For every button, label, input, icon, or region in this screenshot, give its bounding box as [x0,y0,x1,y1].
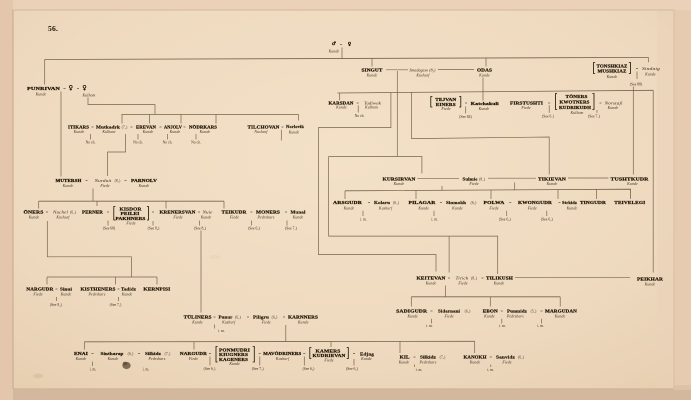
svg-text:Punmidz: Punmidz [507,309,527,314]
svg-text:Kushurf: Kushurf [378,206,393,210]
svg-text:=: = [107,210,110,215]
svg-text:(See 68): (See 68) [103,226,116,230]
svg-text:Kunde: Kunde [200,215,212,219]
svg-text:Fiede: Fiede [520,106,531,110]
svg-text:=: = [63,86,66,91]
svg-text:Norlovik: Norlovik [286,124,304,129]
svg-text:Kunde: Kunde [451,206,463,210]
svg-text:Kushurf: Kushurf [221,320,236,324]
svg-text:=: = [281,125,284,130]
svg-text:(See 6₁): (See 6₁) [542,115,555,119]
svg-text:=: = [448,276,451,281]
svg-text:=: = [481,276,484,281]
svg-text:ITIKARS: ITIKARS [68,125,89,130]
svg-text:No ch.: No ch. [191,140,201,144]
svg-text:(See 7₃): (See 7₃) [110,303,123,307]
svg-text:PERNER: PERNER [82,210,104,215]
svg-text:TEIVELEGI: TEIVELEGI [614,200,645,205]
svg-text:TUSHTKUDR: TUSHTKUDR [611,176,650,181]
svg-text:ANJOLV: ANJOLV [164,125,183,130]
svg-text:56.: 56. [48,24,58,33]
svg-text:Piligru: Piligru [253,315,270,320]
svg-text:Kunde: Kunde [366,74,378,78]
svg-text:=: = [247,315,250,320]
svg-text:=: = [117,287,120,292]
svg-text:Fiede: Fiede [261,320,272,324]
svg-text:=: = [440,200,443,205]
svg-text:=: = [46,210,49,215]
svg-text:Kushurf: Kushurf [275,357,290,361]
svg-text:(See 6₃): (See 6₃) [346,367,359,371]
svg-text:=: = [183,125,186,130]
svg-text:Norstafi: Norstafi [603,100,623,105]
svg-text:(6₀): (6₀) [128,352,135,356]
svg-text:=: = [152,210,155,215]
svg-text:ENAI: ENAI [74,351,88,356]
svg-text:(8₃): (8₃) [479,177,486,181]
svg-text:=: = [213,315,216,320]
svg-text:FIRSTUSHTI: FIRSTUSHTI [510,100,543,105]
svg-text:Kunde: Kunde [417,206,429,210]
svg-text:(See 88): (See 88) [630,82,643,86]
svg-text:Pedrshars: Pedrshars [257,215,275,219]
svg-text:Edjng: Edjng [360,351,375,356]
svg-text:Silkidz: Silkidz [420,355,436,360]
svg-text:Kunde: Kunde [73,130,85,134]
svg-text:=: = [509,200,512,205]
svg-text:TILCHOVAN: TILCHOVAN [248,125,281,130]
svg-text:Kunde: Kunde [360,357,372,361]
svg-text:POLWA: POLWA [484,200,506,205]
svg-text:Kunde: Kunde [493,281,505,285]
svg-text:i. m.: i. m. [360,217,367,221]
svg-text:Kunde: Kunde [62,184,74,188]
svg-text:Kunde: Kunde [228,362,240,366]
svg-text:i. m.: i. m. [90,367,97,371]
svg-text:TEIKUDR: TEIKUDR [222,210,248,215]
svg-text:TONSHKIAZ: TONSHKIAZ [597,63,628,68]
svg-text:=: = [340,42,343,47]
svg-text:(See 6₁): (See 6₁) [204,367,217,371]
svg-text:Nushurf: Nushurf [253,130,268,134]
svg-text:Kunde: Kunde [343,206,355,210]
svg-text:Mutkadrk: Mutkadrk [96,125,121,130]
svg-text:Fiede: Fiede [229,215,240,219]
svg-text:Sanvidz: Sanvidz [496,355,515,360]
svg-text:Kulhom: Kulhom [82,94,96,98]
svg-text:Kunde: Kunde [292,215,304,219]
svg-text:KUDRIEVAN: KUDRIEVAN [313,353,347,358]
svg-text:(7₃): (7₃) [122,126,129,130]
svg-text:(See 8₄): (See 8₄) [194,226,207,230]
svg-text:(7₀): (7₀) [440,356,447,360]
svg-text:(8₃): (8₃) [471,277,478,281]
svg-text:(See 8₄): (See 8₄) [50,303,63,307]
svg-text:=: = [258,351,261,356]
svg-text:Silkidz: Silkidz [145,351,161,356]
svg-text:TÖNERS: TÖNERS [566,94,588,99]
svg-text:=: = [130,125,133,130]
svg-text:Pedrshars: Pedrshars [506,314,524,318]
svg-text:Sidarnani: Sidarnani [438,309,461,314]
svg-text:(See 7₀): (See 7₀) [252,367,265,371]
svg-text:NARGUDR: NARGUDR [180,351,208,356]
svg-text:Kunde: Kunde [406,314,418,318]
svg-text:=: = [548,100,551,105]
svg-text:Kunde: Kunde [75,357,87,361]
svg-text:=: = [285,210,288,215]
svg-text:Tirich: Tirich [456,276,469,281]
svg-text:Tadidz: Tadidz [121,286,136,291]
svg-text:Munal: Munal [291,210,307,215]
svg-text:EBON: EBON [483,309,499,314]
svg-text:Fiede: Fiede [440,107,451,111]
svg-text:Kunde: Kunde [478,107,490,111]
svg-text:TÜLINERS: TÜLINERS [184,315,212,320]
svg-text:Fiede: Fiede [444,314,455,318]
svg-text:MARGUDAN: MARGUDAN [545,309,578,314]
svg-text:NARGUDR: NARGUDR [26,287,54,292]
svg-text:KURSIRVAN: KURSIRVAN [383,176,417,181]
svg-text:Kunde: Kunde [478,74,490,78]
svg-text:=: = [636,66,639,71]
svg-text:Kunde: Kunde [60,292,72,296]
svg-text:=: = [540,309,543,314]
svg-text:=: = [283,315,286,320]
svg-text:Fiede: Fiede [468,182,479,186]
svg-text:PARNOLV: PARNOLV [131,178,158,183]
svg-text:Kunde: Kunde [35,92,47,96]
svg-text:Fiede: Fiede [188,357,199,361]
svg-text:(6₃): (6₃) [393,201,400,205]
svg-text:PAKHNERS: PAKHNERS [116,216,146,221]
svg-text:(6₀): (6₀) [471,201,478,205]
svg-text:Kulhant: Kulhant [101,130,116,134]
svg-text:SINGUT: SINGUT [362,68,383,73]
svg-text:Kunde: Kunde [425,281,437,285]
svg-text:i. m.: i. m. [143,367,150,371]
svg-text:Sinmokh: Sinmokh [446,200,467,205]
svg-text:KARNNERS: KARNNERS [288,315,318,320]
svg-text:(See 84): (See 84) [459,115,472,119]
svg-text:KWONGUDR: KWONGUDR [518,200,553,205]
svg-text:Kunde: Kunde [554,314,566,318]
svg-text:i. m.: i. m. [487,368,494,372]
svg-text:=: = [303,351,306,356]
svg-text:Kunde: Kunde [626,182,638,186]
svg-text:Punur: Punur [219,315,233,320]
svg-text:i. m.: i. m. [416,368,423,372]
svg-text:(6₃): (6₃) [70,211,77,215]
svg-text:TILIKUSH: TILIKUSH [486,276,513,281]
svg-text:Fiede: Fiede [32,292,43,296]
svg-text:(6₃): (6₃) [518,356,525,360]
svg-text:Fiede: Fiede [527,206,538,210]
svg-text:=: = [500,309,503,314]
svg-text:(6₀): (6₀) [235,316,242,320]
svg-text:=: = [599,100,602,105]
svg-text:Kushurf: Kushurf [55,215,70,219]
svg-text:Kunde: Kunde [28,215,40,219]
svg-text:PEIKHAR: PEIKHAR [637,276,664,281]
svg-text:Kunde: Kunde [566,206,578,210]
svg-text:Kunde: Kunde [199,130,211,134]
svg-text:Katchakuli: Katchakuli [471,101,500,106]
svg-text:Fiede: Fiede [323,359,334,363]
svg-text:Kunde: Kunde [138,184,150,188]
svg-text:ODAS: ODAS [477,68,492,73]
svg-text:KISTHENERS: KISTHENERS [81,287,116,292]
svg-text:Tadiwak: Tadiwak [364,100,381,105]
svg-text:KERNPISI: KERNPISI [143,287,170,292]
svg-text:PUNRIVAN: PUNRIVAN [27,86,61,91]
svg-text:=: = [159,125,162,130]
svg-text:Kunde: Kunde [398,360,410,364]
svg-text:Kunde: Kunde [393,182,405,186]
svg-text:Kunde: Kunde [644,282,656,286]
svg-text:NÖDRKARS: NÖDRKARS [189,125,217,130]
svg-text:(See 6₃): (See 6₃) [541,218,554,222]
svg-text:Nuchel: Nuchel [52,210,69,215]
svg-text:No ch.: No ch. [133,140,143,144]
svg-text:Kunde: Kunde [328,50,340,54]
svg-text:(See 6₃): (See 6₃) [248,226,261,230]
svg-text:(See 7₁): (See 7₁) [588,115,601,119]
svg-text:Pedrshars: Pedrshars [148,357,166,361]
svg-text:=: = [356,101,359,106]
svg-text:Sulmie: Sulmie [463,176,478,181]
svg-text:i. m.: i. m. [218,329,225,333]
svg-text:PILAGAR: PILAGAR [409,200,437,205]
svg-text:Fiede: Fiede [488,206,499,210]
svg-text:Fiede: Fiede [125,221,136,225]
svg-text:=: = [489,355,492,360]
svg-text:Kunde: Kunde [121,292,133,296]
svg-text:=: = [430,309,433,314]
svg-text:Fiede: Fiede [99,184,110,188]
svg-text:(7₃): (7₃) [165,352,172,356]
svg-text:(6₃): (6₃) [465,310,472,314]
svg-text:=: = [85,178,88,183]
svg-text:Kulhom: Kulhom [570,111,584,115]
svg-text:i. m.: i. m. [426,324,433,328]
svg-text:Kunde: Kunde [483,314,495,318]
svg-text:Pedrshars: Pedrshars [88,292,106,296]
svg-text:SADIGUDR: SADIGUDR [396,309,428,314]
svg-text:Fiede: Fiede [172,215,183,219]
svg-text:i. m.: i. m. [499,324,506,328]
svg-text:TIKIEVAN: TIKIEVAN [538,176,567,181]
svg-text:(6₀): (6₀) [272,316,279,320]
svg-text:Kunde: Kunde [469,360,481,364]
svg-text:Kunde: Kunde [644,73,656,77]
svg-text:Fiede: Fiede [457,281,468,285]
svg-text:Kunde: Kunde [107,357,119,361]
svg-text:=: = [413,355,416,360]
svg-text:=: = [353,351,356,356]
svg-text:=: = [91,351,94,356]
svg-text:i. m.: i. m. [537,324,544,328]
svg-text:=: = [250,210,253,215]
svg-text:=: = [91,125,94,130]
svg-text:Kushurf: Kushurf [415,74,430,78]
svg-text:Nuie: Nuie [201,210,212,215]
svg-text:EREVAN: EREVAN [136,125,157,130]
svg-text:i. m.: i. m. [431,217,438,221]
svg-text:(See 8₄): (See 8₄) [148,226,161,230]
svg-text:(See 7₃): (See 7₃) [285,226,298,230]
svg-text:Kolaru: Kolaru [374,200,391,205]
svg-text:KIL: KIL [400,355,410,360]
svg-text:=: = [77,86,80,91]
svg-text:MUTERSH: MUTERSH [56,178,82,183]
svg-text:(See 6₅): (See 6₅) [303,367,316,371]
svg-text:=: = [368,200,371,205]
svg-text:Kunde: Kunde [191,320,203,324]
svg-text:=: = [558,200,561,205]
svg-text:Kunde: Kunde [607,106,619,110]
svg-text:Kunde: Kunde [335,106,347,110]
svg-text:Strkidz: Strkidz [562,200,577,205]
svg-text:Kunde: Kunde [297,320,309,324]
svg-text:Nurduit: Nurduit [93,178,112,183]
svg-text:ÖNERS: ÖNERS [24,210,44,215]
svg-text:=: = [465,101,468,106]
svg-text:Sindaig: Sindaig [642,66,661,71]
svg-text:Fiede: Fiede [501,360,512,364]
svg-text:ARSGUDR: ARSGUDR [333,200,363,205]
svg-text:TINGUDR: TINGUDR [580,200,607,205]
svg-text:Sinui: Sinui [60,286,73,291]
svg-text:KRENERSVAN: KRENERSVAN [160,210,197,215]
svg-text:KANOKH: KANOKH [464,355,487,360]
svg-text:Kunde: Kunde [546,182,558,186]
svg-text:Kunde: Kunde [142,130,154,134]
svg-text:Kulhom: Kulhom [364,106,378,110]
svg-text:Kunde: Kunde [169,130,181,134]
svg-text:No ch.: No ch. [86,140,96,144]
svg-text:(See 6₀): (See 6₀) [499,218,512,222]
svg-text:=: = [138,351,141,356]
svg-text:No ch.: No ch. [355,114,365,118]
svg-text:No ch.: No ch. [163,140,173,144]
svg-text:=: = [124,178,127,183]
svg-text:(8₃): (8₃) [115,179,122,183]
svg-text:MAVÖDRINERS: MAVÖDRINERS [263,351,301,356]
svg-text:MONERS: MONERS [256,210,280,215]
svg-text:Kunde: Kunde [288,131,300,135]
svg-text:=: = [55,287,58,292]
svg-text:Pedrshars: Pedrshars [419,360,437,364]
svg-text:MUSHKIAZ: MUSHKIAZ [598,69,627,74]
svg-text:Sintharap: Sintharap [101,351,125,356]
svg-text:=: = [198,210,201,215]
svg-text:KEITEVAN: KEITEVAN [417,276,447,281]
svg-text:Smadagaso (8₅): Smadagaso (8₅) [410,68,436,73]
svg-text:KWOTNERS: KWOTNERS [560,100,590,105]
svg-text:Kunde: Kunde [606,75,618,79]
svg-text:(5₃): (5₃) [531,310,538,314]
svg-text:KUDRIKUDH: KUDRIKUDH [559,105,591,110]
svg-text:=: = [209,351,212,356]
